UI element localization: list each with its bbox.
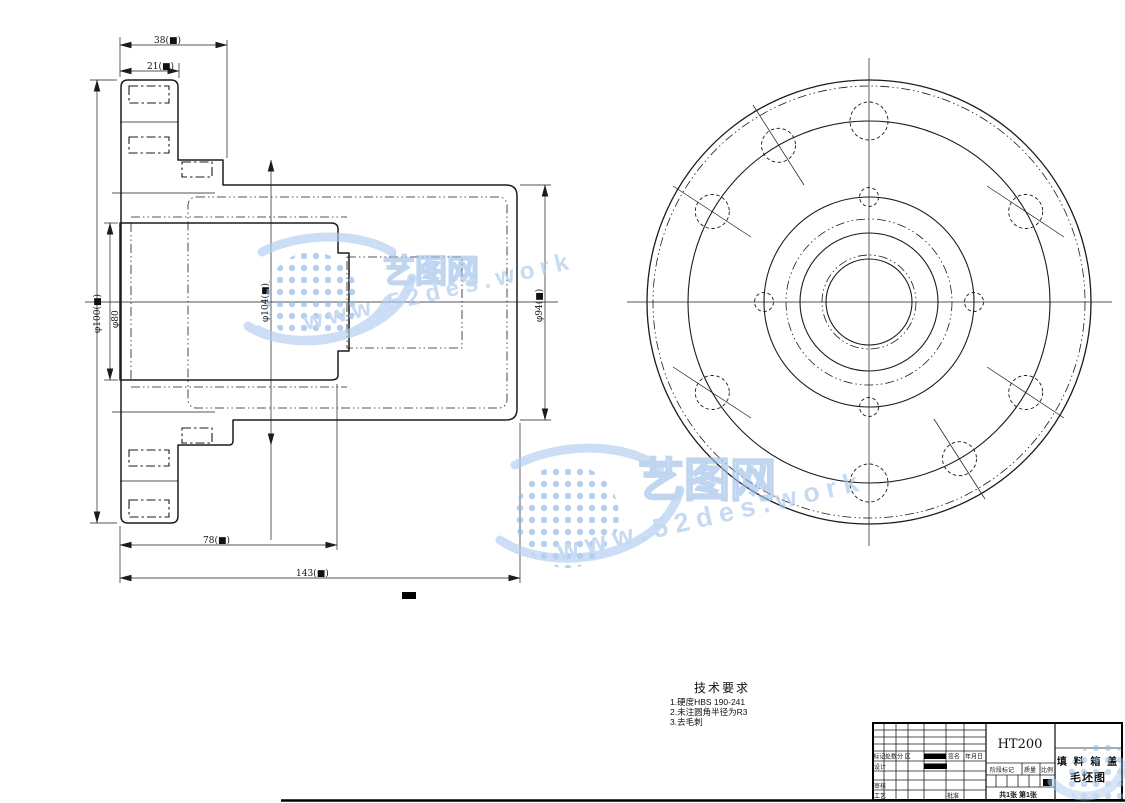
hidden-hole-top-1: [129, 86, 169, 103]
tech-req-title: 技术要求: [694, 681, 750, 695]
label-sign: 签名: [948, 753, 960, 761]
label-mark: 标记: [874, 753, 886, 761]
hidden-step-detail-top: [182, 162, 212, 177]
hole-strike-line: [753, 105, 804, 185]
stray-mark: [402, 592, 416, 599]
label-process: 工艺: [874, 792, 886, 800]
title-block: 标记 处数 分 区 签名 年月日 设计 审核 工艺 批准 HT200 阶段标记 …: [281, 723, 1125, 801]
tech-req-item: 2.未注圆角半径为R3: [670, 707, 748, 717]
label-design: 设计: [874, 763, 886, 771]
label-stage-mark: 阶段标记: [990, 766, 1014, 774]
label-date: 年月日: [965, 753, 983, 761]
hidden-hole-top-2: [129, 137, 169, 153]
label-approve: 批准: [947, 792, 959, 800]
tech-req-item: 1.硬度HBS 190-241: [670, 697, 745, 707]
label-mass: 质量: [1024, 766, 1036, 774]
watermark-left: 艺图网 www.52des.work: [248, 237, 577, 344]
dim-text-78: 78(■): [203, 535, 230, 546]
technical-requirements: 技术要求 1.硬度HBS 190-241 2.未注圆角半径为R3 3.去毛刺: [670, 681, 750, 727]
hole-strike-line: [987, 367, 1064, 418]
hole-strike-line: [673, 186, 751, 237]
hidden-hole-bottom-2: [129, 500, 169, 517]
revision-bar: [924, 754, 946, 760]
hidden-hole-bottom-1: [129, 450, 169, 466]
label-count: 处数: [885, 753, 897, 761]
dim-text-dia94: φ94(■): [534, 289, 545, 322]
material-value: HT200: [998, 737, 1043, 752]
label-check: 审核: [874, 782, 886, 790]
label-zone: 分 区: [897, 753, 911, 761]
hole-strike-line: [673, 367, 751, 418]
dim-text-dia100: φ100(■): [92, 294, 103, 333]
hole-strike-line: [934, 419, 985, 499]
tech-req-item: 3.去毛刺: [670, 717, 703, 727]
dim-text-38: 38(■): [154, 35, 181, 46]
hole-strike-line: [987, 186, 1064, 237]
sheet-info: 共1张 第1张: [999, 790, 1038, 799]
design-bar: [924, 764, 947, 770]
dim-text-21: 21(■): [147, 61, 174, 72]
engineering-drawing-canvas: 38(■) 21(■) 78(■) 143(■) φ100(■) φ80 φ10…: [0, 0, 1125, 803]
hidden-step-detail-bottom: [182, 428, 212, 443]
dim-text-143: 143(■): [296, 568, 329, 579]
label-scale: 比例: [1041, 766, 1053, 774]
dim-text-dia80: φ80: [111, 310, 121, 328]
blank-part-drawing-sheet: 38(■) 21(■) 78(■) 143(■) φ100(■) φ80 φ10…: [0, 0, 1125, 803]
watermark-bottom: 艺图网 www.52des.work: [500, 448, 868, 568]
